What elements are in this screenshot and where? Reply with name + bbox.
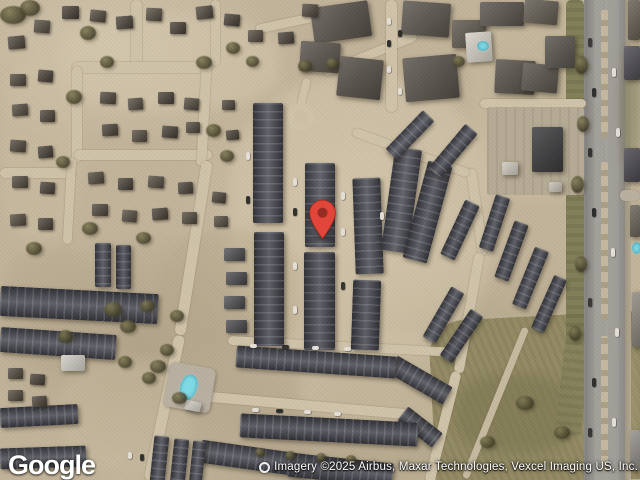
tree [255,448,265,457]
car [252,408,259,412]
house [148,175,165,188]
car [588,148,592,157]
house [89,9,106,23]
house [224,13,241,26]
road [620,190,640,201]
bldg [545,36,575,68]
house [170,22,186,34]
tree [100,56,114,68]
house [40,110,55,122]
attribution-bar: Imagery ©2025 Airbus, Maxar Technologies… [259,461,638,473]
house [116,15,134,29]
road [72,62,210,73]
house [226,320,247,333]
tree [571,176,584,193]
location-pin[interactable] [307,199,338,240]
car [334,412,341,416]
bldg [532,127,563,172]
median [601,10,608,138]
car [246,196,250,204]
car [612,418,616,427]
car [293,262,297,270]
row [95,243,111,287]
row [116,245,131,289]
pool [632,242,640,254]
house [146,8,163,22]
car [341,192,345,200]
tree [298,60,312,72]
tree [172,392,187,404]
house [102,124,119,137]
house [38,69,54,82]
house [10,139,27,152]
car [588,38,592,47]
tree [160,344,174,356]
house [34,19,51,33]
tree [66,90,82,104]
bldg [502,162,518,175]
bldg [630,205,640,237]
attribution-icon [259,462,270,473]
tree [569,326,581,341]
tree [142,372,156,384]
house [248,30,263,42]
house [178,182,194,195]
house [62,6,79,19]
car [341,282,345,290]
row [253,103,283,223]
row [0,404,78,428]
car [293,208,297,216]
tree [246,56,259,67]
bldg [61,355,85,371]
tree [480,436,495,448]
car [380,212,384,220]
house [224,248,245,261]
car [293,306,297,314]
house [186,122,200,133]
car [282,345,289,349]
road [72,66,82,162]
car [398,30,402,37]
road [74,150,212,160]
house [12,176,28,188]
tree [80,26,96,40]
map-canvas[interactable]: Google Imagery ©2025 Airbus, Maxar Techn… [0,0,640,480]
house [211,191,226,203]
median [601,162,608,320]
house [122,209,138,222]
tree [104,302,122,317]
car [387,18,391,25]
google-logo[interactable]: Google [8,450,95,480]
bldg [628,0,640,40]
row [254,232,284,346]
tree [140,300,155,312]
car [312,346,319,350]
tree [516,396,534,410]
house [8,368,23,379]
car [615,328,619,337]
row [352,178,383,275]
house [132,130,147,142]
house [184,97,200,110]
road [386,0,397,112]
house [118,178,133,190]
house [38,218,53,230]
car [616,128,620,137]
house [32,395,48,407]
car [588,298,592,307]
tree [20,0,40,16]
house [12,103,29,116]
car [276,409,283,413]
house [128,97,144,110]
tree [220,150,234,162]
imagery-attribution: Imagery ©2025 Airbus, Maxar Technologies… [274,461,638,473]
house [7,35,25,49]
house [224,296,245,309]
car [611,248,615,257]
house [100,92,117,105]
tree [226,42,240,54]
tree [554,426,570,439]
house [195,5,213,20]
pin-inner-dot [317,208,327,218]
car [344,347,351,351]
row [304,252,335,350]
bldg [549,182,562,192]
pin-body [309,200,335,238]
car [588,428,592,437]
house [226,272,247,285]
tree [575,56,588,74]
car [592,208,596,217]
tree [452,56,465,67]
car [612,68,616,77]
tree [575,256,587,272]
car [250,344,257,348]
tree [136,232,151,244]
house [302,4,319,18]
tree [326,58,339,69]
tree [82,222,98,235]
house [8,390,23,401]
car [341,228,345,236]
tree [150,360,166,373]
bldg [624,148,640,182]
house [10,214,27,227]
bldg [624,46,640,80]
tree [206,124,221,137]
tree [26,242,42,255]
house [10,74,26,86]
house [30,373,46,385]
tree [118,356,132,368]
tree [577,116,589,132]
house [158,92,174,104]
house [38,145,54,158]
house [92,204,108,216]
car [592,88,596,97]
bldg [401,0,451,37]
car [304,410,311,414]
bldg [523,0,559,25]
car [293,178,297,186]
car [387,66,391,73]
bldg [336,56,384,100]
car [140,454,144,461]
house [40,181,56,194]
row [189,440,206,480]
tree [120,320,136,333]
car [246,152,250,160]
house [214,216,228,227]
bldg [310,0,372,44]
house [182,212,197,224]
tree [196,56,212,69]
car [592,378,596,387]
house [226,129,240,140]
bldg [632,292,640,347]
car [387,40,391,47]
tree [58,330,73,343]
house [278,31,295,44]
bldg [480,2,524,26]
row [351,280,381,351]
tree [170,310,184,322]
ring [287,103,315,131]
median [601,336,608,472]
house [88,171,105,184]
house [162,125,179,138]
road [131,0,142,68]
car [128,452,132,459]
tree [285,451,295,460]
house [222,100,235,110]
tree [56,156,70,168]
car [398,88,402,95]
house [152,207,169,220]
